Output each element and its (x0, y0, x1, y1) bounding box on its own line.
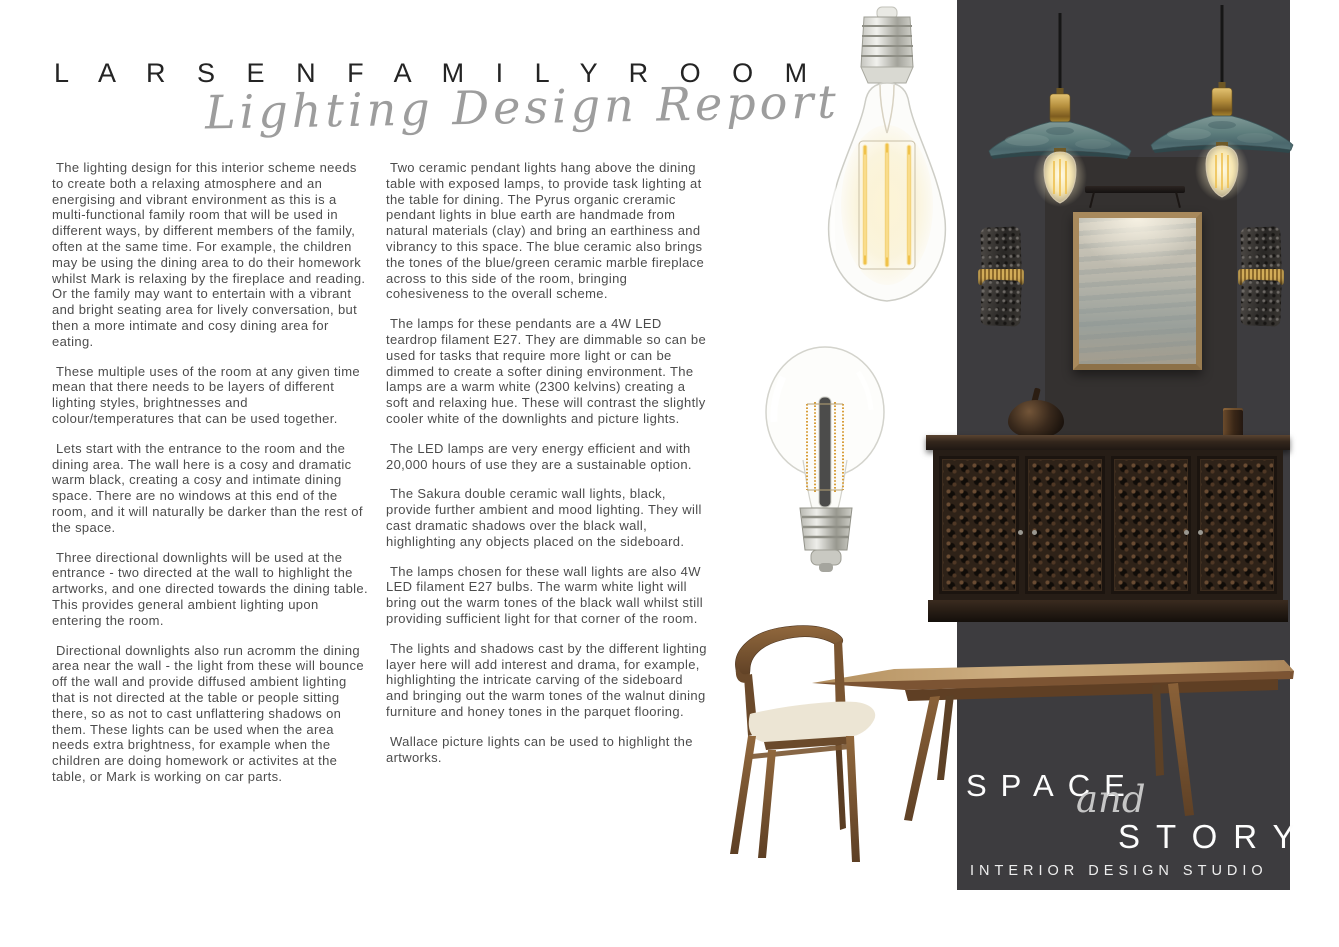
paragraph: The lamps chosen for these wall lights a… (386, 564, 708, 627)
sideboard-door (939, 456, 1019, 594)
gls-filament-bulb-image (758, 342, 898, 577)
paragraph: The lights and shadows cast by the diffe… (386, 641, 708, 720)
paragraph: Two ceramic pendant lights hang above th… (386, 160, 708, 302)
paragraph: The lamps for these pendants are a 4W LE… (386, 316, 708, 427)
door-knob (1018, 530, 1023, 535)
paragraph: Directional downlights also run acromm t… (52, 643, 370, 785)
paragraph: The Sakura double ceramic wall lights, b… (386, 486, 708, 549)
text-column-middle: Two ceramic pendant lights hang above th… (386, 160, 708, 779)
paragraph: Three directional downlights will be use… (52, 550, 370, 629)
lighting-design-report-page: L A R S E N F A M I L Y R O O M Lighting… (0, 0, 1339, 947)
door-knob (1032, 530, 1037, 535)
sideboard-top (926, 435, 1290, 450)
text-column-left: The lighting design for this interior sc… (52, 160, 370, 799)
ceramic-wall-sconce-image (1238, 227, 1284, 327)
paragraph: Lets start with the entrance to the room… (52, 441, 370, 536)
bronze-bowl-image (1008, 400, 1064, 438)
page-subtitle-script: Lighting Design Report (205, 74, 841, 139)
paragraph: These multiple uses of the room at any g… (52, 364, 370, 427)
sideboard-door (1197, 456, 1277, 594)
door-knob (1198, 530, 1203, 535)
ceramic-pendant-lights-image (957, 0, 1297, 215)
carved-sideboard-image (926, 435, 1290, 622)
bronze-vase-image (1223, 408, 1243, 437)
dining-chair-image (722, 618, 897, 868)
paragraph: The lighting design for this interior sc… (52, 160, 370, 350)
ceramic-wall-sconce-image (978, 227, 1024, 327)
sideboard-door (1111, 456, 1191, 594)
sideboard-door (1025, 456, 1105, 594)
sideboard-body (933, 450, 1283, 600)
paragraph: Wallace picture lights can be used to hi… (386, 734, 708, 766)
picture-light-image (1085, 186, 1185, 193)
abstract-painting (1079, 218, 1196, 364)
paragraph: The LED lamps are very energy efficient … (386, 441, 708, 473)
door-knob (1184, 530, 1189, 535)
edison-teardrop-bulb-image (812, 5, 962, 305)
sideboard-plinth (928, 600, 1288, 622)
brand-tagline: INTERIOR DESIGN STUDIO (970, 863, 1268, 879)
framed-artwork-image (1073, 212, 1202, 370)
